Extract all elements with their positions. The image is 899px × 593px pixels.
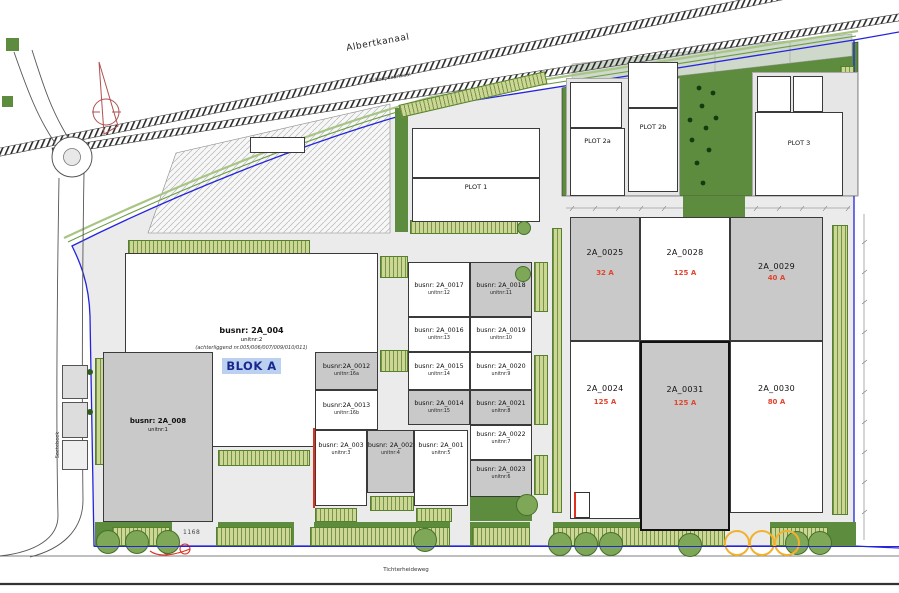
- planting-cells: [534, 355, 548, 425]
- tree-icon: [517, 221, 531, 235]
- unit-unitnr: unitnr:3: [332, 452, 351, 457]
- west-road-label: Soetebeek: [55, 423, 61, 467]
- planting-cells: [416, 508, 452, 522]
- blok-a-title: BLOK A: [222, 358, 280, 374]
- plot2b-building: PLOT 2b: [628, 108, 678, 192]
- planting-cells: [380, 256, 408, 278]
- site-boundary-bottom: [94, 546, 899, 547]
- parcel-id: 2A_0025: [586, 248, 623, 257]
- proposed-tree-icon: [774, 530, 800, 556]
- tree-icon: [678, 533, 702, 557]
- tree-icon: [413, 528, 437, 552]
- unit-unitnr: unitnr:4: [381, 452, 400, 457]
- plot3-label: PLOT 3: [788, 139, 811, 147]
- unit-busnr: busnr: 2A_001: [418, 443, 463, 450]
- green-patch: [6, 38, 19, 51]
- tree-icon: [515, 266, 531, 282]
- planting-cells: [370, 496, 414, 511]
- unit-unitnr: unitnr:7: [492, 441, 511, 446]
- blok-a-note: (achterliggend nr.005/006/007/009/010/01…: [195, 345, 307, 351]
- unit-unitnr: unitnr:6: [492, 476, 511, 481]
- parking-cells: [472, 527, 530, 546]
- plot3-upper-building: [793, 76, 823, 112]
- unit-busnr: busnr: 2A_0015: [414, 364, 463, 371]
- tree-icon: [96, 530, 120, 554]
- unit-busnr: busnr: 2A_0018: [476, 283, 525, 290]
- unit-2A_0022: busnr: 2A_0022 unitnr:7: [470, 425, 532, 460]
- unit-2A_0015: busnr: 2A_0015 unitnr:14: [408, 352, 470, 390]
- proposed-tree-icon: [749, 530, 775, 556]
- parcel-amperage: 32 A: [596, 269, 614, 277]
- unit-busnr: busnr: 2A_0017: [414, 283, 463, 290]
- parcel-2A_0028: 2A_0028 125 A: [640, 217, 730, 341]
- b008-unitnr: unitnr:1: [148, 427, 168, 433]
- bollard-icon: [87, 369, 93, 375]
- small-building: [250, 137, 305, 153]
- parcel-id: 2A_0031: [666, 385, 703, 394]
- parcel-amperage: 40 A: [768, 274, 786, 282]
- layby-structure: [62, 402, 88, 438]
- plot2a-label: PLOT 2a: [584, 137, 611, 145]
- unit-2A_0016: busnr: 2A_0016 unitnr:13: [408, 317, 470, 352]
- north-arrow-icon: [92, 62, 121, 134]
- site-plan: PLOT 2a PLOT 2b PLOT 3 PLOT 1 busnr: 2A_…: [0, 0, 899, 593]
- unit-busnr: busnr: 2A_0014: [414, 401, 463, 408]
- unit-2A_001: busnr: 2A_001 unitnr:5: [414, 430, 468, 506]
- plot3-building: PLOT 3: [755, 112, 843, 196]
- unit-unitnr: unitnr:12: [428, 292, 450, 297]
- plot1-building: PLOT 1: [412, 178, 540, 222]
- plot1-upper-building: [412, 128, 540, 178]
- unit-2A_0013: busnr:2A_0013 unitnr:16b: [315, 390, 378, 430]
- unit-busnr: busnr: 2A_0021: [476, 401, 525, 408]
- annex-building: [574, 492, 590, 518]
- parcel-amperage: 125 A: [674, 399, 696, 407]
- parcel-2A_0025: 2A_0025 32 A: [570, 217, 640, 341]
- planting-cells: [410, 220, 518, 234]
- planting-cells: [534, 262, 548, 312]
- planting-cells: [534, 455, 548, 495]
- unit-busnr: busnr:2A_0012: [323, 364, 370, 371]
- unit-busnr: busnr: 2A_0019: [476, 328, 525, 335]
- parcel-amperage: 125 A: [594, 398, 616, 406]
- unit-2A_0021: busnr: 2A_0021 unitnr:8: [470, 390, 532, 425]
- green-patch: [2, 96, 13, 107]
- unit-unitnr: unitnr:15: [428, 410, 450, 415]
- unit-unitnr: unitnr:9: [492, 373, 511, 378]
- parking-cells: [216, 527, 292, 546]
- dimension-chain-right: [862, 214, 867, 540]
- blok-a-busnr: busnr: 2A_004: [219, 326, 283, 335]
- parcel-id: 2A_0024: [586, 384, 623, 393]
- tree-icon: [548, 532, 572, 556]
- unit-2A_0019: busnr: 2A_0019 unitnr:10: [470, 317, 532, 352]
- building-2A_008: busnr: 2A_008 unitnr:1: [103, 352, 213, 522]
- unit-unitnr: unitnr:13: [428, 337, 450, 342]
- unit-unitnr: unitnr:10: [490, 337, 512, 342]
- unit-unitnr: unitnr:8: [492, 410, 511, 415]
- tree-icon: [516, 494, 538, 516]
- tree-icon: [574, 532, 598, 556]
- proposed-tree-icon: [724, 530, 750, 556]
- unit-busnr: busnr: 2A_0020: [476, 364, 525, 371]
- tree-icon: [599, 532, 623, 556]
- tree-icon: [125, 530, 149, 554]
- parcel-id: 2A_0028: [666, 248, 703, 257]
- unit-unitnr: unitnr:16b: [334, 412, 359, 417]
- unit-2A_0014: busnr: 2A_0014 unitnr:15: [408, 390, 470, 425]
- unit-unitnr: unitnr:5: [432, 452, 451, 457]
- unit-2A_0017: busnr: 2A_0017 unitnr:12: [408, 262, 470, 317]
- planting-cells: [218, 450, 310, 466]
- tree-icon: [156, 530, 180, 554]
- layby-structure: [62, 440, 88, 470]
- red-fire-line: [313, 428, 315, 508]
- planting-cells: [380, 350, 408, 372]
- parcel-amperage: 80 A: [768, 398, 786, 406]
- unit-unitnr: unitnr:16a: [334, 373, 359, 378]
- unit-unitnr: unitnr:11: [490, 292, 512, 297]
- unit-busnr: busnr: 2A_0022: [476, 432, 525, 439]
- plot3-upper-building: [757, 76, 791, 112]
- unit-2A_002: busnr: 2A_002 unitnr:4: [367, 430, 414, 493]
- unit-2A_0023: busnr: 2A_0023 unitnr:6: [470, 460, 532, 497]
- parcel-id: 2A_0029: [758, 262, 795, 271]
- planting-cells: [552, 228, 562, 513]
- plot1-label: PLOT 1: [465, 183, 488, 191]
- planting-cells: [315, 508, 357, 522]
- parcel-id: 2A_0030: [758, 384, 795, 393]
- plot2a-upper-building: [570, 82, 622, 128]
- parcel-amperage: 125 A: [674, 269, 696, 277]
- green-strip: [395, 108, 408, 232]
- tree-icon: [808, 531, 832, 555]
- unit-busnr: busnr: 2A_002: [368, 443, 413, 450]
- plot2a-building: PLOT 2a: [570, 128, 625, 196]
- unit-busnr: busnr: 2A_0023: [476, 467, 525, 474]
- layby-structure: [62, 365, 88, 399]
- unit-busnr: busnr: 2A_0016: [414, 328, 463, 335]
- roundabout: [52, 137, 92, 177]
- blok-a-unitnr: unitnr:2: [241, 337, 263, 343]
- b008-busnr: busnr: 2A_008: [130, 417, 186, 425]
- plot2b-label: PLOT 2b: [640, 123, 667, 131]
- unit-2A_0012: busnr:2A_0012 unitnr:16a: [315, 352, 378, 390]
- unit-2A_0020: busnr: 2A_0020 unitnr:9: [470, 352, 532, 390]
- south-road-label: Tichterheideweg: [368, 567, 444, 573]
- unit-busnr: busnr: 2A_003: [318, 443, 363, 450]
- plot2b-upper-building: [628, 62, 678, 108]
- unit-unitnr: unitnr:14: [428, 373, 450, 378]
- parcel-2A_0031: 2A_0031 125 A: [640, 341, 730, 531]
- planting-cells: [832, 225, 848, 515]
- parcel-2A_0029: 2A_0029 40 A: [730, 217, 823, 341]
- bollard-icon: [87, 409, 93, 415]
- dimension-1168: 1168: [183, 529, 200, 536]
- planting-cells: [128, 240, 310, 254]
- parcel-2A_0030: 2A_0030 80 A: [730, 341, 823, 513]
- unit-busnr: busnr:2A_0013: [323, 403, 370, 410]
- west-road: [0, 50, 84, 557]
- unit-2A_003: busnr: 2A_003 unitnr:3: [315, 430, 367, 506]
